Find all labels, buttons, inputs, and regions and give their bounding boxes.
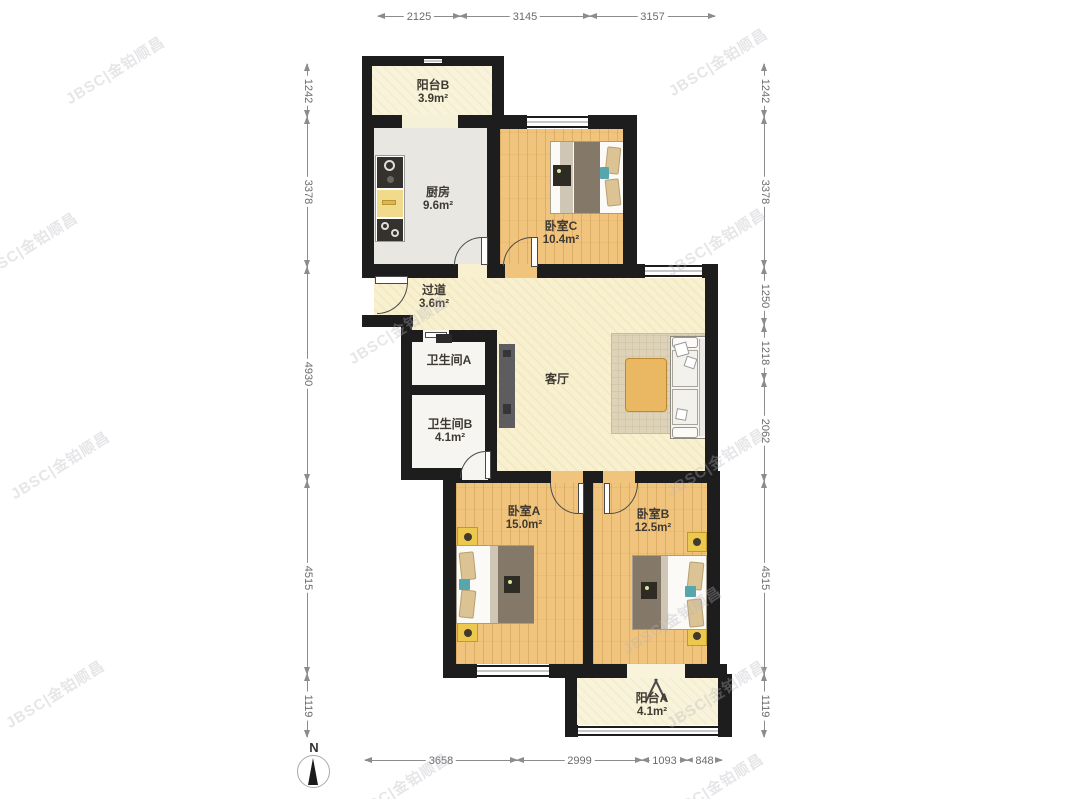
door-leaf-kitchen [481, 237, 488, 265]
dimension-value: 1250 [759, 281, 771, 311]
wall [492, 56, 504, 122]
wall [487, 264, 505, 278]
pillow [459, 589, 477, 618]
dimension-value: 1119 [302, 691, 314, 720]
watermark: JBSC|金铂顺昌 [1, 655, 108, 733]
lamp-icon [464, 533, 472, 541]
dimension-value: 1093 [649, 755, 679, 767]
watermark: JBSC|金铂顺昌 [664, 23, 771, 101]
wall [583, 483, 593, 664]
dimension-v-4515: 4515 [307, 481, 308, 674]
door-leaf-bedroom-c [531, 237, 538, 267]
room-name-bedroom-b: 卧室B [635, 507, 671, 521]
wall [487, 115, 527, 129]
door-leaf-bedroom-a [578, 483, 584, 514]
dimension-value: 848 [692, 755, 716, 767]
room-label-bathroom-b: 卫生间B4.1m² [428, 417, 473, 445]
tv-light [508, 580, 512, 584]
room-label-living-room: 客厅 [545, 372, 569, 386]
dimension-value: 4515 [759, 562, 771, 592]
room-name-bathroom-a: 卫生间A [427, 353, 472, 367]
north-label: N [306, 740, 322, 755]
window [527, 116, 588, 128]
room-area-balcony-b: 3.9m² [417, 92, 450, 106]
dimension-value: 3378 [302, 177, 314, 207]
sofa-armrest [672, 427, 698, 438]
dimension-v-4930: 4930 [307, 267, 308, 481]
doorway-balcony-a [627, 664, 685, 678]
nightstand [687, 532, 707, 552]
bed-sheet [490, 546, 498, 623]
dimension-value: 4515 [302, 562, 314, 592]
wall [623, 115, 637, 265]
door-leaf-bathroom-b [485, 451, 491, 479]
wall [537, 264, 645, 278]
faucet-icon [387, 176, 394, 183]
bed-c [550, 141, 624, 214]
room-area-bedroom-c: 10.4m² [543, 233, 579, 247]
pillow [459, 551, 477, 580]
kitchen-sink [377, 157, 403, 188]
dimension-h-848: 848 [687, 760, 722, 761]
wall [707, 480, 720, 670]
window [424, 57, 442, 65]
room-label-balcony-b: 阳台B3.9m² [417, 78, 450, 106]
bed-blanket [574, 142, 600, 213]
dimension-v-3378: 3378 [307, 117, 308, 267]
room-label-kitchen: 厨房9.6m² [423, 185, 453, 213]
cabinet-detail [503, 350, 511, 357]
lamp-icon [693, 632, 701, 640]
tv-light [645, 586, 649, 590]
dimension-v-1218: 1218 [764, 325, 765, 380]
passage-balcony-b [402, 115, 458, 128]
doorway-bedroom-b [603, 471, 635, 483]
watermark: JBSC|金铂顺昌 [346, 748, 453, 799]
kitchen-counter [377, 190, 403, 217]
room-name-balcony-b: 阳台B [417, 78, 450, 92]
nightstand [457, 623, 478, 642]
cabinet-detail [503, 404, 511, 414]
wall [443, 478, 456, 674]
lamp-icon [693, 538, 701, 546]
room-area-bathroom-b: 4.1m² [428, 431, 473, 445]
doorway-bedroom-a [551, 471, 583, 483]
watermark: JBSC|金铂顺昌 [6, 426, 113, 504]
burner-icon [381, 222, 389, 230]
sofa [670, 336, 710, 439]
lamp-icon [464, 629, 472, 637]
bedside-tv [553, 165, 571, 186]
dimension-h-3145: 3145 [460, 16, 590, 17]
throw-pillow [675, 408, 688, 421]
wall [705, 264, 718, 480]
dimension-v-1250: 1250 [764, 267, 765, 325]
wall [487, 122, 500, 264]
dimension-v-1242: 1242 [764, 64, 765, 117]
dimension-v-1119: 1119 [307, 674, 308, 737]
dimension-v-3378: 3378 [764, 117, 765, 267]
wall [718, 725, 732, 737]
watermark: JBSC|金铂顺昌 [0, 207, 82, 285]
bedside-tv [504, 576, 520, 593]
room-label-bedroom-c: 卧室C10.4m² [543, 219, 579, 247]
north-arrow-icon [308, 758, 318, 785]
wall [362, 115, 374, 264]
dimension-value: 1218 [759, 337, 771, 367]
room-name-bedroom-c: 卧室C [543, 219, 579, 233]
dimension-h-2999: 2999 [517, 760, 642, 761]
dimension-value: 2999 [564, 755, 594, 767]
dimension-h-1093: 1093 [642, 760, 687, 761]
room-name-balcony-a: 阳台A [636, 691, 669, 705]
floor-plan: N 阳台B3.9m²厨房9.6m²卧室C10.4m²过道3.6m²卫生间A卫生间… [0, 0, 1066, 799]
room-area-bedroom-a: 15.0m² [506, 518, 542, 532]
door-tab-bathroom-a [436, 334, 452, 343]
dimension-value: 1242 [759, 75, 771, 105]
bedside-tv [641, 582, 657, 599]
dimension-v-1119: 1119 [764, 674, 765, 737]
tv-light [557, 169, 561, 173]
dimension-h-3157: 3157 [590, 16, 715, 17]
dimension-value: 3157 [637, 11, 667, 23]
room-name-living-room: 客厅 [545, 372, 569, 386]
room-area-kitchen: 9.6m² [423, 199, 453, 213]
window [578, 726, 718, 736]
dimension-value: 3145 [510, 11, 540, 23]
dimension-h-2125: 2125 [378, 16, 460, 17]
dimension-value: 1242 [302, 75, 314, 105]
coffee-table [625, 358, 667, 412]
kitchen-counter-unit [375, 155, 405, 242]
room-name-bathroom-b: 卫生间B [428, 417, 473, 431]
wall [401, 327, 412, 480]
sink-bowl-icon [384, 160, 395, 171]
room-label-bathroom-a: 卫生间A [427, 353, 472, 367]
wall [401, 385, 497, 395]
dimension-v-4515: 4515 [764, 481, 765, 674]
dimension-value: 1119 [759, 691, 771, 720]
nightstand [457, 527, 478, 546]
tv-cabinet [499, 344, 515, 428]
kitchen-stove [377, 219, 403, 241]
room-name-kitchen: 厨房 [423, 185, 453, 199]
burner-icon [391, 229, 399, 237]
dimension-value: 4930 [302, 359, 314, 389]
wall [583, 471, 603, 483]
window [477, 665, 549, 677]
watermark: JBSC|金铂顺昌 [61, 31, 168, 109]
bed-runner [600, 167, 609, 179]
door-leaf-bedroom-b [604, 483, 610, 514]
counter-item [382, 200, 396, 205]
bed-a [456, 545, 534, 624]
wall [443, 664, 477, 678]
room-label-bedroom-a: 卧室A15.0m² [506, 504, 542, 532]
pillow [605, 178, 622, 206]
dimension-v-2062: 2062 [764, 380, 765, 481]
dimension-value: 2125 [404, 11, 434, 23]
room-label-bedroom-b: 卧室B12.5m² [635, 507, 671, 535]
door-leaf-entry [375, 276, 408, 284]
wall [549, 664, 627, 678]
room-name-bedroom-a: 卧室A [506, 504, 542, 518]
dimension-v-1242: 1242 [307, 64, 308, 117]
wall [565, 725, 578, 737]
dimension-value: 3378 [759, 177, 771, 207]
doorway-kitchen [458, 264, 487, 278]
room-area-bedroom-b: 12.5m² [635, 521, 671, 535]
bed-runner [459, 579, 470, 590]
